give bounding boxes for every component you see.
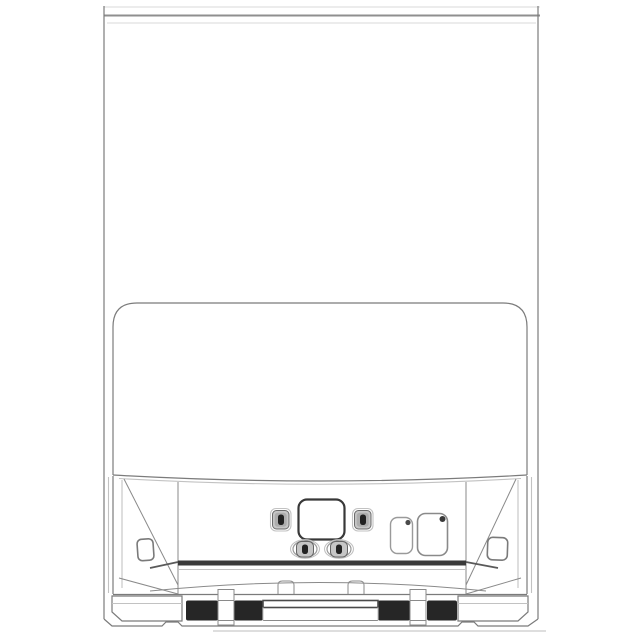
wall-plates	[137, 537, 508, 561]
illustration-canvas: Technical line drawing: front view of a …	[0, 0, 640, 640]
foot-block-left	[112, 596, 182, 621]
left-plinth-diagonal	[119, 578, 178, 594]
roller-bracket-right	[410, 590, 426, 626]
base-center-bar	[263, 601, 378, 608]
support-rail	[178, 561, 466, 566]
roller-right-inner	[378, 601, 410, 621]
right-plinth-diagonal	[466, 578, 521, 594]
hood-panel-outline	[113, 303, 527, 475]
foot-block-right	[458, 596, 528, 621]
right-wall-perspective-line	[466, 479, 516, 585]
hood-panel	[113, 303, 527, 484]
roller-bracket-left	[218, 590, 234, 626]
capsule-button-left	[291, 540, 320, 559]
roller-left-inner	[234, 601, 263, 621]
cover-plate-small-pin-icon	[405, 520, 410, 525]
support-rail-right-end	[466, 562, 498, 568]
cover-plates	[391, 514, 448, 556]
lock-button-left-slot-icon	[278, 515, 284, 526]
support-rail-left-end	[150, 562, 178, 568]
roller-left-outer	[186, 601, 218, 621]
lock-button-right-slot-icon	[360, 515, 366, 526]
capsule-button-right	[325, 540, 354, 559]
roller-right-outer	[427, 601, 457, 621]
capsule-right-slot-icon	[336, 545, 342, 555]
wall-plate-left	[137, 538, 154, 561]
sill-curve	[150, 583, 486, 592]
appliance-line-drawing: Technical line drawing: front view of a …	[0, 0, 640, 640]
lock-button-right	[353, 509, 374, 532]
left-wall-perspective-line	[124, 479, 178, 585]
wall-plate-right	[487, 537, 508, 560]
hood-bottom-curve	[113, 475, 527, 481]
control-cluster	[271, 500, 448, 559]
display-window	[299, 500, 345, 540]
lock-button-left	[271, 509, 292, 532]
rail-and-sill	[150, 561, 498, 592]
cover-plate-large-pin-icon	[440, 516, 446, 522]
capsule-left-slot-icon	[302, 545, 308, 555]
